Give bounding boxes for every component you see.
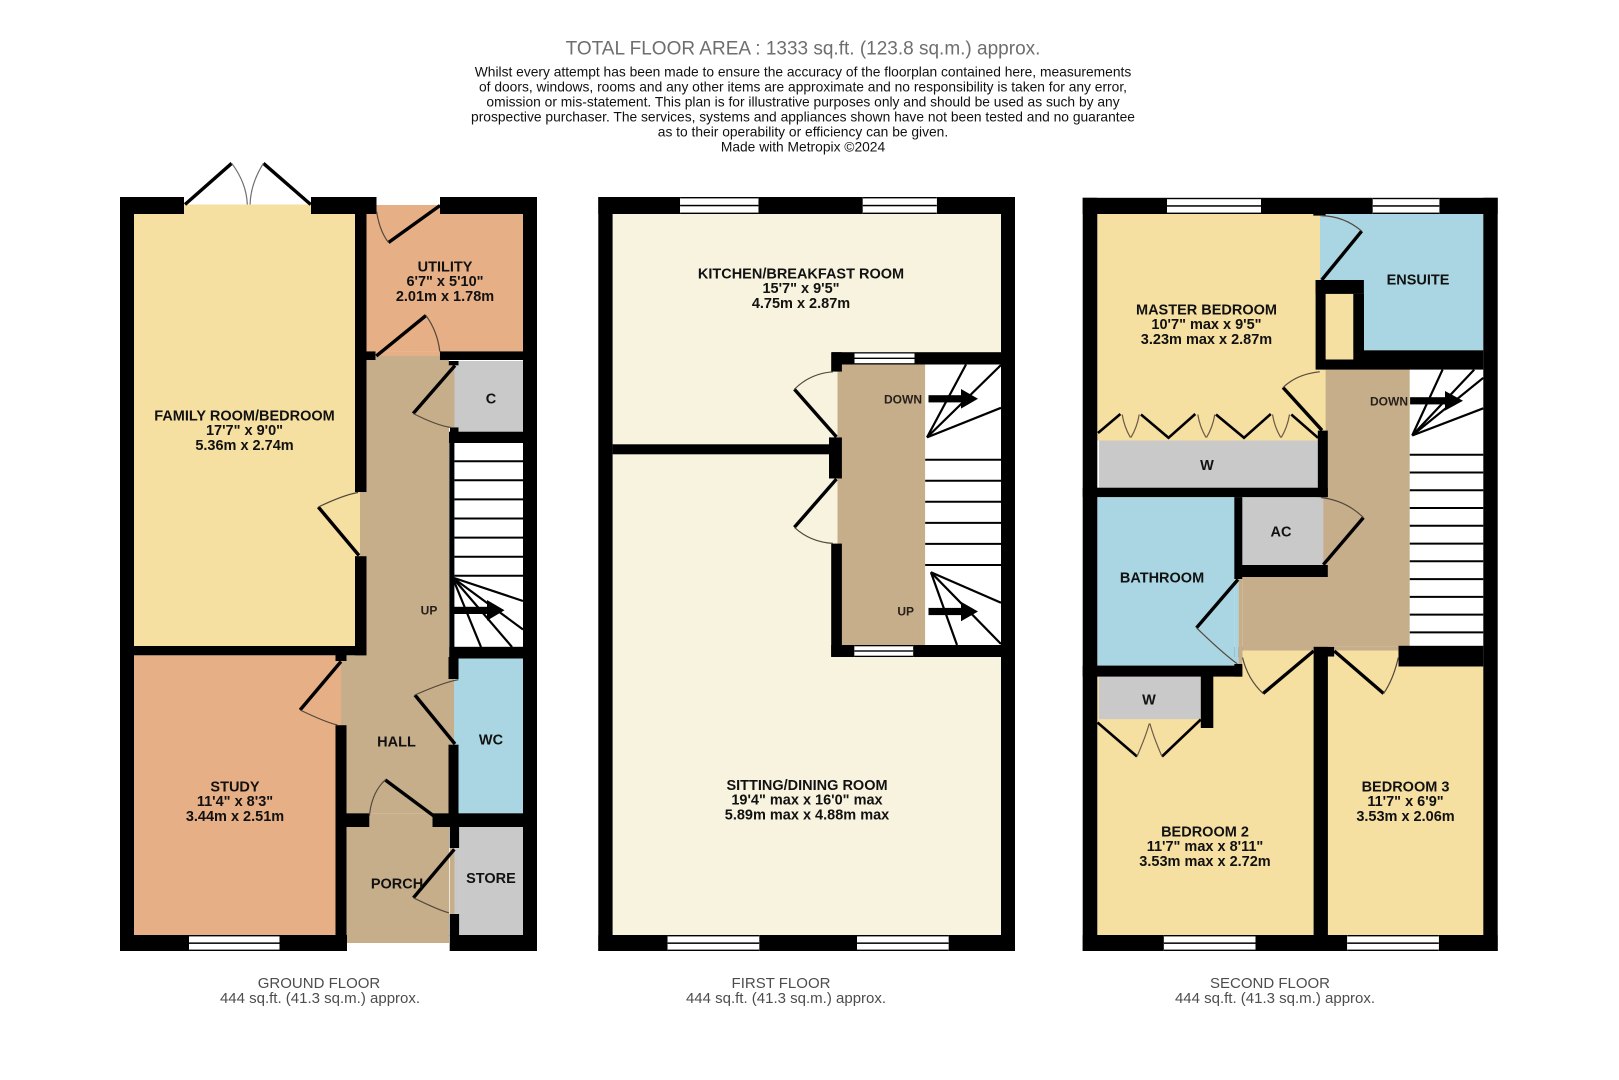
svg-text:C: C xyxy=(486,392,497,408)
svg-text:SITTING/DINING ROOM: SITTING/DINING ROOM xyxy=(726,778,887,794)
svg-text:UP: UP xyxy=(897,605,914,619)
svg-text:4.75m x 2.87m: 4.75m x 2.87m xyxy=(752,296,850,312)
svg-text:11'4" x 8'3": 11'4" x 8'3" xyxy=(197,794,273,810)
svg-text:Made with Metropix ©2024: Made with Metropix ©2024 xyxy=(721,140,886,155)
svg-text:ENSUITE: ENSUITE xyxy=(1387,273,1450,289)
svg-text:444 sq.ft. (41.3 sq.m.) approx: 444 sq.ft. (41.3 sq.m.) approx. xyxy=(686,990,886,1007)
svg-text:3.23m max x 2.87m: 3.23m max x 2.87m xyxy=(1141,332,1272,348)
svg-text:KITCHEN/BREAKFAST ROOM: KITCHEN/BREAKFAST ROOM xyxy=(698,267,904,283)
svg-text:UP: UP xyxy=(421,604,438,618)
svg-text:11'7" max x 8'11": 11'7" max x 8'11" xyxy=(1147,839,1264,855)
svg-text:BEDROOM 2: BEDROOM 2 xyxy=(1161,825,1249,841)
svg-text:10'7" max x 9'5": 10'7" max x 9'5" xyxy=(1151,317,1261,333)
svg-text:444 sq.ft. (41.3 sq.m.) approx: 444 sq.ft. (41.3 sq.m.) approx. xyxy=(220,990,420,1007)
svg-text:15'7" x 9'5": 15'7" x 9'5" xyxy=(762,281,839,297)
svg-text:Whilst every attempt has been: Whilst every attempt has been made to en… xyxy=(475,65,1132,80)
svg-text:5.89m max x 4.88m max: 5.89m max x 4.88m max xyxy=(725,807,889,823)
svg-text:11'7" x 6'9": 11'7" x 6'9" xyxy=(1367,794,1443,810)
svg-text:3.53m x 2.06m: 3.53m x 2.06m xyxy=(1356,809,1454,825)
svg-text:2.01m x 1.78m: 2.01m x 1.78m xyxy=(396,289,494,305)
svg-text:MASTER BEDROOM: MASTER BEDROOM xyxy=(1136,303,1277,319)
svg-text:WC: WC xyxy=(479,733,504,749)
svg-text:FAMILY ROOM/BEDROOM: FAMILY ROOM/BEDROOM xyxy=(154,409,334,425)
svg-text:19'4" max x 16'0" max: 19'4" max x 16'0" max xyxy=(731,793,882,809)
svg-text:UTILITY: UTILITY xyxy=(418,260,473,276)
svg-text:TOTAL FLOOR AREA : 1333 sq.ft.: TOTAL FLOOR AREA : 1333 sq.ft. (123.8 sq… xyxy=(566,39,1041,60)
svg-text:5.36m x 2.74m: 5.36m x 2.74m xyxy=(195,438,293,454)
svg-text:PORCH: PORCH xyxy=(371,877,423,893)
svg-text:STORE: STORE xyxy=(466,871,516,887)
svg-text:3.44m x 2.51m: 3.44m x 2.51m xyxy=(186,809,284,825)
svg-text:prospective purchaser. The ser: prospective purchaser. The services, sys… xyxy=(471,110,1135,125)
svg-text:of doors, windows, rooms and a: of doors, windows, rooms and any other i… xyxy=(479,80,1127,95)
svg-text:17'7" x 9'0": 17'7" x 9'0" xyxy=(206,423,283,439)
svg-text:AC: AC xyxy=(1271,525,1292,541)
svg-text:HALL: HALL xyxy=(377,735,416,751)
svg-text:STUDY: STUDY xyxy=(210,780,259,796)
svg-text:444 sq.ft. (41.3 sq.m.) approx: 444 sq.ft. (41.3 sq.m.) approx. xyxy=(1175,990,1375,1007)
svg-text:W: W xyxy=(1200,458,1214,474)
svg-text:as to their operability or eff: as to their operability or efficiency ca… xyxy=(658,125,948,140)
svg-text:omission or mis-statement. Thi: omission or mis-statement. This plan is … xyxy=(486,95,1119,110)
svg-text:3.53m max x 2.72m: 3.53m max x 2.72m xyxy=(1139,854,1270,870)
svg-text:6'7" x 5'10": 6'7" x 5'10" xyxy=(406,274,483,290)
svg-text:DOWN: DOWN xyxy=(1370,395,1408,409)
svg-text:W: W xyxy=(1142,693,1156,709)
svg-text:BEDROOM 3: BEDROOM 3 xyxy=(1362,780,1450,796)
svg-text:BATHROOM: BATHROOM xyxy=(1120,571,1204,587)
svg-text:DOWN: DOWN xyxy=(884,393,922,407)
